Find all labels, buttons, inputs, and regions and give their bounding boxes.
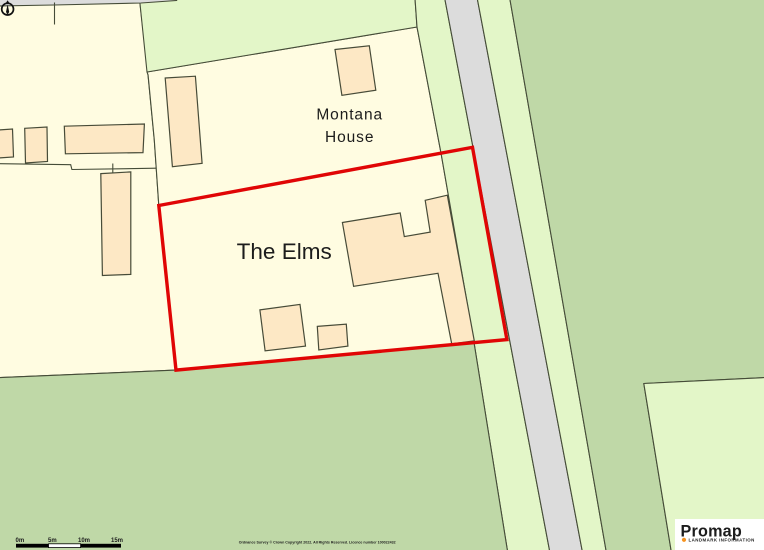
svg-text:The Elms: The Elms [237, 239, 332, 264]
svg-text:5m: 5m [48, 538, 57, 544]
svg-text:Ordnance Survey © Crown Copyri: Ordnance Survey © Crown Copyright 2022. … [239, 541, 396, 545]
svg-text:0m: 0m [16, 538, 25, 544]
svg-text:LANDMARK INFORMATION: LANDMARK INFORMATION [689, 538, 755, 543]
svg-text:Montana: Montana [316, 107, 383, 124]
svg-text:House: House [325, 129, 374, 146]
svg-text:15m: 15m [111, 538, 123, 544]
svg-text:10m: 10m [78, 538, 90, 544]
